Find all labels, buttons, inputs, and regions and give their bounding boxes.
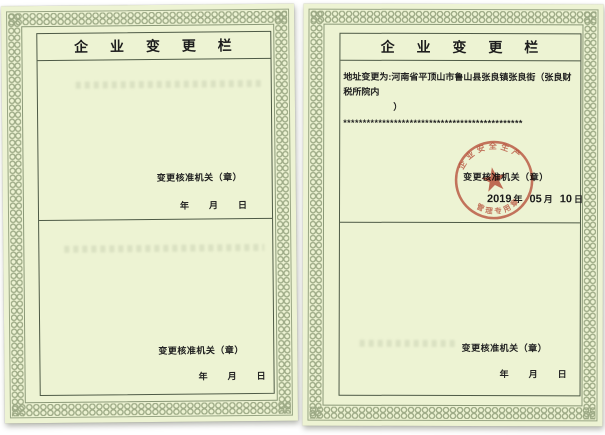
day-label: 日 xyxy=(257,371,266,381)
month-label: 月 xyxy=(529,369,538,379)
right-page: 企 业 变 更 栏 地址变更为:河南省平顶山市鲁山县张良镇张良街（张良财税所院内… xyxy=(302,4,603,427)
change-record-box: 企 业 变 更 栏 变更核准机关（章） 年月日 变更核准机关（章） 年月日 xyxy=(36,31,274,396)
bleed-through-mark xyxy=(76,80,261,89)
title-row: 企 业 变 更 栏 xyxy=(37,32,270,61)
month-label: 月 xyxy=(544,194,553,204)
date-placeholder: 年月日 xyxy=(180,198,247,212)
seal-star-icon xyxy=(480,165,508,192)
approval-seal: 企业安全生产 管理专用章 xyxy=(443,129,545,231)
day-label: 日 xyxy=(574,194,583,204)
bleed-through-mark xyxy=(64,244,264,253)
ornamental-border-left xyxy=(309,11,322,419)
svg-text:企业安全生产: 企业安全生产 xyxy=(452,135,527,173)
ornamental-border-right xyxy=(583,11,596,419)
ornamental-border-bottom xyxy=(309,407,595,420)
year-label: 年 xyxy=(180,201,189,211)
day-value: 10 xyxy=(560,193,572,205)
day-label: 日 xyxy=(238,200,247,210)
authority-seal-label: 变更核准机关（章） xyxy=(157,170,243,184)
bleed-through-mark xyxy=(360,340,455,347)
page-title: 企 业 变 更 栏 xyxy=(74,35,234,57)
page-title: 企 业 变 更 栏 xyxy=(381,37,541,57)
change-record-box: 企 业 变 更 栏 地址变更为:河南省平顶山市鲁山县张良镇张良街（张良财税所院内… xyxy=(339,33,582,397)
year-label: 年 xyxy=(500,369,509,379)
seal-top-arc-text: 企业安全生产 xyxy=(452,135,527,173)
authority-seal-label: 变更核准机关（章） xyxy=(158,343,244,357)
authority-seal-label: 变更核准机关（章） xyxy=(462,341,548,354)
address-change-entry: 地址变更为:河南省平顶山市鲁山县张良镇张良街（张良财税所院内 ） xyxy=(343,70,577,115)
date-placeholder: 年月日 xyxy=(199,369,266,383)
month-label: 月 xyxy=(228,371,237,381)
year-label: 年 xyxy=(199,371,208,381)
section-divider xyxy=(39,218,272,221)
address-change-line1: 地址变更为:河南省平顶山市鲁山县张良镇张良街（张良财税所院内 xyxy=(343,70,577,100)
date-placeholder: 年月日 xyxy=(500,367,567,380)
entry-terminator: ****************************************… xyxy=(343,117,577,128)
title-row: 企 业 变 更 栏 xyxy=(340,34,580,62)
ornamental-border-top xyxy=(311,11,597,24)
month-label: 月 xyxy=(209,200,218,210)
left-page: 企 业 变 更 栏 变更核准机关（章） 年月日 变更核准机关（章） 年月日 xyxy=(1,4,298,424)
day-label: 日 xyxy=(558,369,567,379)
address-change-line2: ） xyxy=(343,99,577,114)
